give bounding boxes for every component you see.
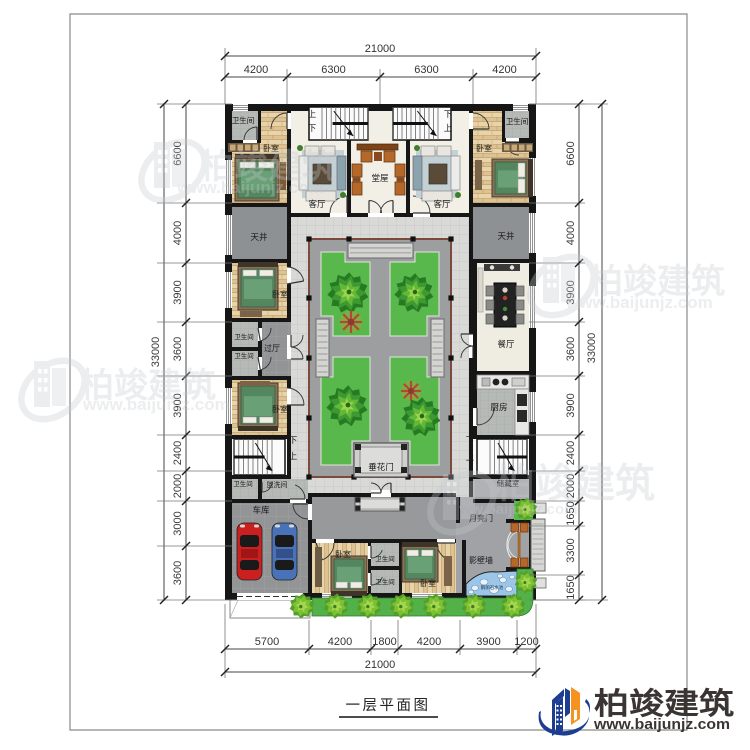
svg-text:1650: 1650 — [565, 575, 577, 599]
svg-text:卧室: 卧室 — [420, 578, 436, 588]
svg-text:卫生间: 卫生间 — [375, 577, 395, 586]
svg-text:卫生间: 卫生间 — [234, 332, 254, 341]
svg-text:4200: 4200 — [244, 64, 268, 76]
svg-text:3900: 3900 — [565, 393, 577, 417]
svg-text:www.baijunjz.com: www.baijunjz.com — [176, 178, 324, 197]
svg-text:卫生间: 卫生间 — [233, 479, 253, 488]
svg-text:客厅: 客厅 — [308, 199, 326, 209]
svg-text:天井: 天井 — [250, 232, 267, 242]
svg-text:卫生间: 卫生间 — [232, 115, 255, 125]
svg-text:卧室: 卧室 — [272, 404, 288, 414]
svg-text:下: 下 — [466, 435, 475, 445]
svg-text:6300: 6300 — [414, 64, 438, 76]
svg-text:1200: 1200 — [514, 636, 538, 648]
svg-text:3600: 3600 — [565, 337, 577, 361]
svg-text:www.baijunjz.com: www.baijunjz.com — [82, 395, 230, 414]
svg-text:21000: 21000 — [365, 659, 396, 671]
svg-text:6300: 6300 — [321, 64, 345, 76]
svg-text:1800: 1800 — [372, 636, 396, 648]
svg-text:3300: 3300 — [565, 538, 577, 562]
svg-text:3600: 3600 — [172, 337, 184, 361]
svg-text:卫生间: 卫生间 — [506, 116, 529, 126]
svg-text:天井: 天井 — [497, 231, 514, 241]
svg-text:鹅卵石水池: 鹅卵石水池 — [481, 584, 504, 591]
svg-text:柏竣建筑: 柏竣建筑 — [495, 462, 655, 506]
svg-text:4000: 4000 — [565, 221, 577, 245]
svg-text:一层平面图: 一层平面图 — [346, 698, 431, 714]
svg-text:卧室: 卧室 — [335, 549, 351, 559]
svg-text:3900: 3900 — [476, 636, 500, 648]
svg-text:4200: 4200 — [492, 64, 516, 76]
svg-text:www.baijunjz.com: www.baijunjz.com — [593, 717, 730, 733]
svg-text:车库: 车库 — [252, 505, 270, 515]
svg-text:6600: 6600 — [565, 141, 577, 165]
svg-text:3000: 3000 — [172, 511, 184, 535]
svg-text:过厅: 过厅 — [264, 343, 280, 353]
svg-text:垂花门: 垂花门 — [368, 462, 394, 472]
svg-text:柏竣建筑: 柏竣建筑 — [594, 687, 734, 721]
svg-text:下: 下 — [444, 109, 453, 119]
svg-text:卫生间: 卫生间 — [375, 554, 395, 563]
svg-text:3900: 3900 — [172, 280, 184, 304]
svg-text:堂屋: 堂屋 — [371, 173, 389, 183]
svg-text:厨房: 厨房 — [490, 402, 507, 412]
svg-text:餐厅: 餐厅 — [497, 339, 515, 349]
svg-text:2000: 2000 — [172, 474, 184, 498]
svg-text:上: 上 — [466, 452, 475, 462]
svg-text:33000: 33000 — [586, 333, 598, 364]
svg-text:21000: 21000 — [365, 43, 396, 55]
svg-text:下: 下 — [308, 123, 317, 133]
svg-text:上: 上 — [289, 451, 298, 461]
svg-text:4000: 4000 — [172, 221, 184, 245]
svg-text:上: 上 — [308, 109, 317, 119]
svg-text:www.baijunjz.com: www.baijunjz.com — [447, 501, 577, 518]
svg-text:上: 上 — [444, 123, 453, 133]
svg-text:33000: 33000 — [150, 337, 162, 368]
svg-text:www.baijunjz.com: www.baijunjz.com — [565, 293, 713, 312]
svg-text:4200: 4200 — [328, 636, 352, 648]
svg-text:卧室: 卧室 — [476, 143, 492, 153]
svg-text:卫生间: 卫生间 — [234, 351, 254, 360]
svg-text:下: 下 — [289, 435, 298, 445]
svg-text:影壁墙: 影壁墙 — [469, 555, 493, 565]
svg-text:3600: 3600 — [172, 561, 184, 585]
svg-text:卧室: 卧室 — [272, 289, 288, 299]
svg-text:4200: 4200 — [417, 636, 441, 648]
svg-text:盥洗间: 盥洗间 — [267, 480, 288, 489]
svg-text:客厅: 客厅 — [433, 199, 451, 209]
svg-text:2400: 2400 — [172, 441, 184, 465]
svg-text:5700: 5700 — [255, 636, 279, 648]
